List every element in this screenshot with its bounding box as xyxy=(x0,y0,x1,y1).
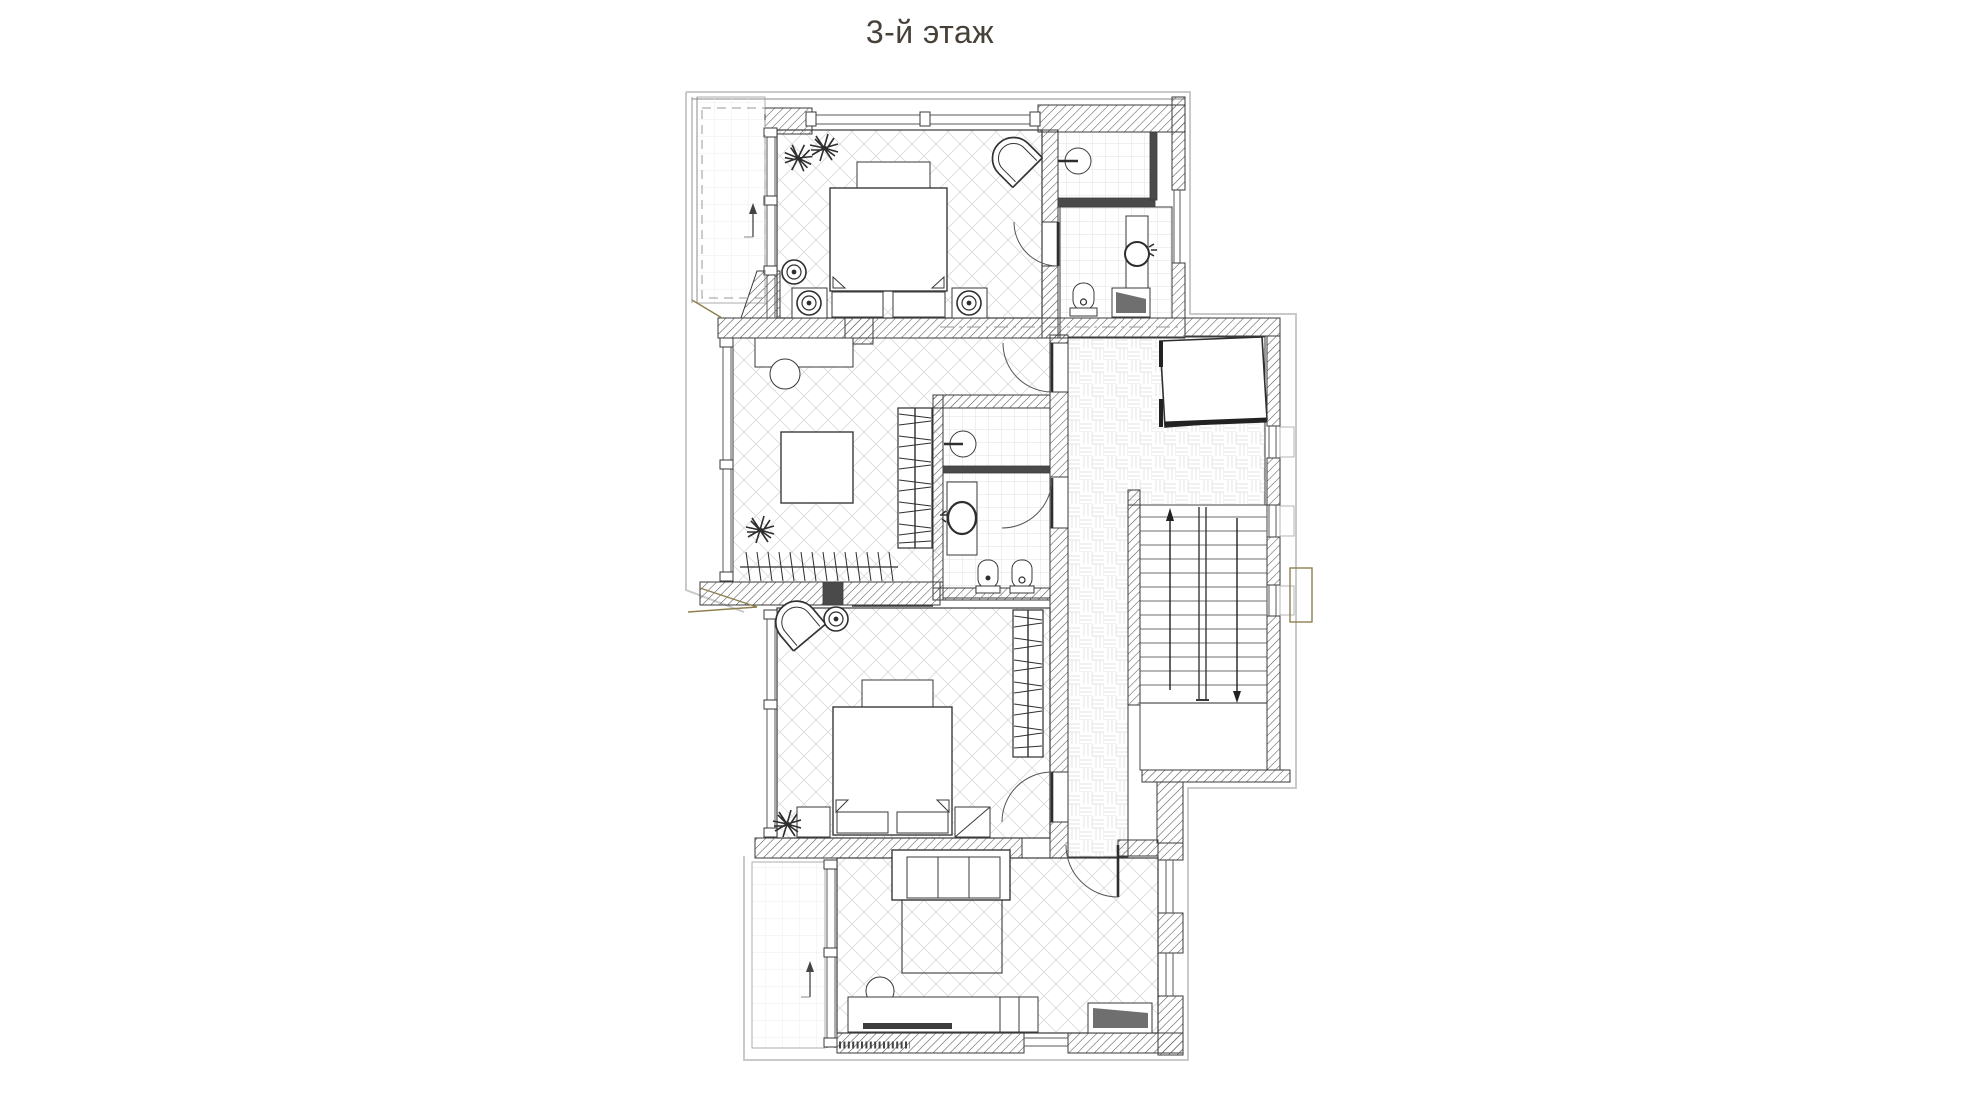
bathroom2-west-wall xyxy=(933,395,943,600)
stool xyxy=(770,359,800,389)
wardrobe-corridor xyxy=(1013,610,1043,757)
bathroom1-east-window xyxy=(1174,190,1180,263)
balcony-floor xyxy=(752,862,825,1048)
tv xyxy=(863,1023,952,1029)
bed1-headboard xyxy=(857,162,930,188)
bedroom2-west-window xyxy=(764,610,777,838)
dressing-south-wall xyxy=(700,582,940,605)
page-title: 3-й этаж xyxy=(866,14,994,51)
bedroom1-south-wall xyxy=(718,318,1060,338)
living-south-window xyxy=(1024,1038,1068,1046)
bed1 xyxy=(830,188,947,291)
wall-lamp xyxy=(782,260,806,284)
bench-cushion xyxy=(1000,997,1019,1032)
balcony-window xyxy=(824,860,837,1048)
bedroom1-bathroom1-wall xyxy=(1042,130,1058,222)
bedroom1-north-window xyxy=(806,112,1040,126)
bed2-cushion xyxy=(897,812,948,833)
bed2-cushion xyxy=(837,812,888,833)
washbasin-oval xyxy=(948,502,976,534)
corner-unit xyxy=(1088,1003,1152,1033)
table-lamp xyxy=(957,291,981,315)
staircase xyxy=(1128,490,1267,770)
bed2-headboard xyxy=(862,680,933,707)
stair-south-wall xyxy=(1142,770,1290,782)
wardrobe-vertical xyxy=(898,408,932,548)
dressing-west-window xyxy=(720,338,733,582)
toilet xyxy=(1070,283,1097,316)
bed1-bench xyxy=(832,292,883,317)
nightstand xyxy=(797,807,830,837)
hall-storage xyxy=(1160,337,1267,427)
hall-west-wall xyxy=(1050,392,1068,477)
floor-plan xyxy=(0,0,1980,1114)
table-lamp xyxy=(797,291,821,315)
bench-cushion xyxy=(1019,997,1038,1032)
bathroom1-divider xyxy=(1058,198,1155,207)
toilet xyxy=(1010,560,1034,593)
shower-corner xyxy=(1112,288,1150,317)
terrace-floor xyxy=(697,97,765,303)
bidet xyxy=(976,560,1000,593)
living-south-wall xyxy=(837,1033,1024,1053)
washbasin-round xyxy=(1125,242,1149,266)
nightstand xyxy=(955,807,990,837)
table xyxy=(781,432,853,503)
stair-stringer-wall xyxy=(1128,490,1140,705)
bed1-bench xyxy=(893,292,945,317)
bathroom2-divider xyxy=(943,466,1050,473)
pendant-lamp xyxy=(824,607,848,631)
console-desk xyxy=(755,338,853,367)
floor-plan-page: 3-й этаж xyxy=(0,0,1980,1114)
